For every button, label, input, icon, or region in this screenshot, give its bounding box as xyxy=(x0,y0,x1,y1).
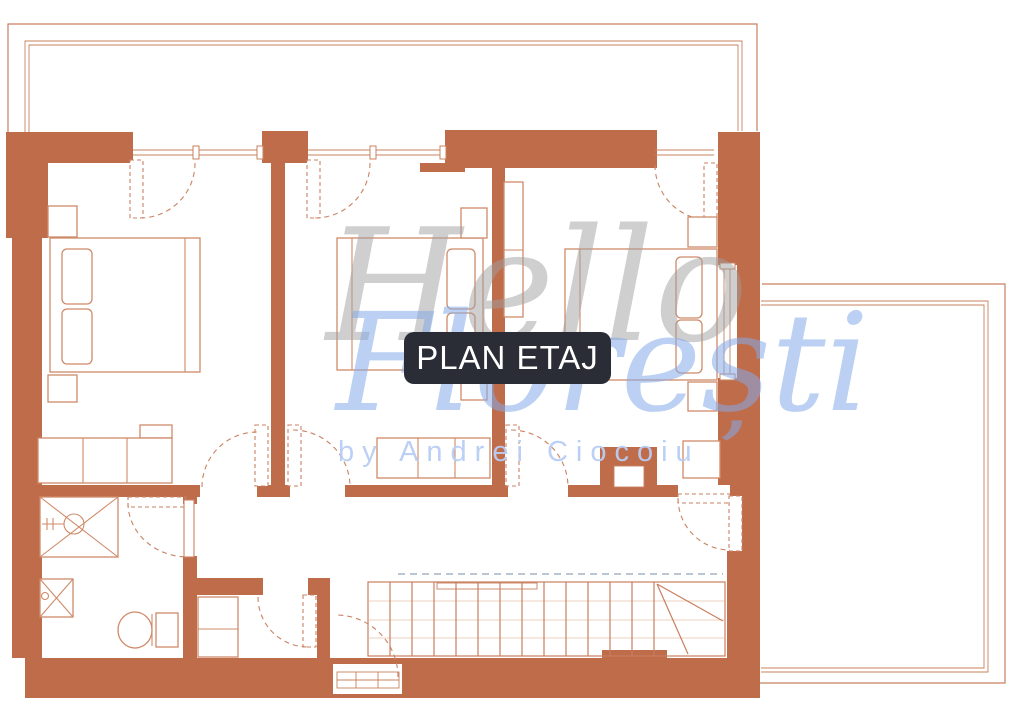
room3-furniture xyxy=(504,182,720,478)
nightstand-icon xyxy=(688,382,717,411)
door-room2-hall xyxy=(288,425,350,487)
window-room3-side xyxy=(718,263,737,380)
door-room3-terrace xyxy=(655,163,717,220)
wardrobe-icon xyxy=(504,182,523,317)
shower-icon xyxy=(40,497,118,557)
floor-plan-badge-label: PLAN ETAJ xyxy=(416,339,599,377)
door-room1-hall xyxy=(202,425,268,487)
exterior-walls xyxy=(6,130,760,698)
floor-plan-badge: PLAN ETAJ xyxy=(404,332,611,384)
nightstand-icon xyxy=(688,217,717,247)
bathroom-fixtures xyxy=(40,497,178,648)
bed-icon xyxy=(50,238,200,372)
dresser-icon xyxy=(38,425,172,483)
door-room3-hall xyxy=(506,425,568,487)
dresser-icon xyxy=(377,438,490,478)
front-terrace xyxy=(8,24,757,133)
window-room1-front xyxy=(133,146,263,159)
door-room1-terrace xyxy=(130,160,195,218)
door-room2-terrace xyxy=(307,160,370,218)
floor-plan-page: Hello Florești by Andrei Ciocoiu PLAN ET… xyxy=(0,0,1011,720)
toilet-icon xyxy=(118,612,178,648)
sink-icon xyxy=(40,579,73,617)
right-terrace xyxy=(760,284,1005,683)
window-room2-front xyxy=(308,146,446,159)
staircase xyxy=(368,574,725,656)
cabinet-icon xyxy=(683,441,720,478)
closet-room xyxy=(198,597,238,657)
closet-icon xyxy=(198,597,238,657)
room1-furniture xyxy=(38,206,200,483)
door-hall-end xyxy=(678,494,742,551)
window-rear xyxy=(333,664,402,694)
window-room3-front xyxy=(655,150,714,155)
nightstand-icon xyxy=(48,206,77,237)
interior-walls xyxy=(42,163,678,658)
nightstand-icon xyxy=(48,375,77,402)
nightstand-icon xyxy=(461,208,487,238)
door-bathroom xyxy=(128,497,194,557)
door-closet-room xyxy=(258,595,316,647)
